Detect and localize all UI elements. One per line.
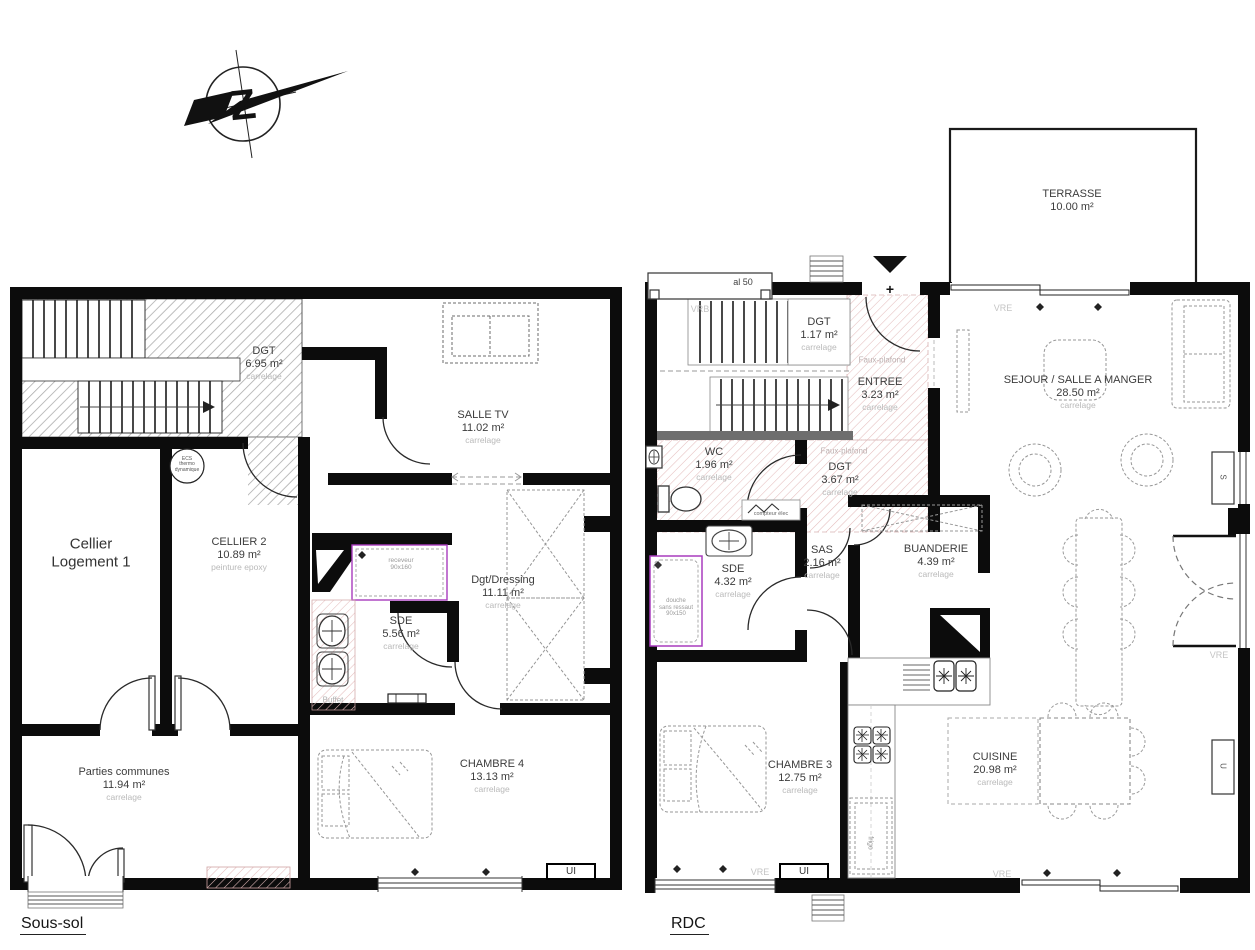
room-area: 20.98 m²: [973, 764, 1018, 777]
room-label-buanderie: BUANDERIE 4.39 m² carrelage: [904, 543, 968, 579]
room-finish: carrelage: [382, 641, 419, 651]
room-finish: carrelage: [245, 371, 282, 381]
room-name: Parties communes: [78, 766, 169, 779]
rdc-chambre3-bed: [660, 726, 766, 812]
vre-tag-3: VRE: [993, 869, 1012, 879]
room-label-cuisine: CUISINE 20.98 m² carrelage: [973, 751, 1018, 787]
room-finish: carrelage: [858, 402, 903, 412]
room-name-line2: Logement 1: [51, 553, 130, 571]
compass-letter: Z: [228, 80, 258, 129]
floorplan-page: Z DGT 6.95 m² carrelage SALLE TV 11.02 m…: [0, 0, 1255, 950]
vre-tag-2: VRE: [1210, 650, 1229, 660]
al50-tag: al 50: [733, 277, 753, 287]
room-label-cellier2: CELLIER 2 10.89 m² peinture epoxy: [211, 536, 267, 572]
room-label-wc: WC 1.96 m² carrelage: [695, 446, 732, 482]
room-finish: carrelage: [695, 472, 732, 482]
radiator: [388, 694, 426, 703]
room-finish: carrelage: [973, 777, 1018, 787]
room-finish: carrelage: [800, 342, 837, 352]
room-label-sejour: SEJOUR / SALLE A MANGER 28.50 m² carrela…: [1004, 374, 1153, 410]
room-name: CHAMBRE 3: [768, 759, 832, 772]
room-area: 1.17 m²: [800, 329, 837, 342]
faux-plafond-note-1: Faux-plafond: [859, 356, 906, 365]
room-label-sde-rdc: SDE 4.32 m² carrelage: [714, 563, 751, 599]
ui-box-soussol: UI: [546, 863, 596, 880]
vrb-tag: VRB: [691, 304, 710, 314]
room-name: SDE: [382, 615, 419, 628]
room-name: CUISINE: [973, 751, 1018, 764]
room-label-chambre3: CHAMBRE 3 12.75 m² carrelage: [768, 759, 832, 795]
frigo-note: frigo: [867, 836, 874, 850]
compteur-note: compteur élec: [754, 511, 789, 517]
room-name: WC: [695, 446, 732, 459]
vre-tag-4: VRE: [751, 867, 770, 877]
ecs-note: ECS thermo dynamique: [175, 457, 199, 473]
room-area: 28.50 m²: [1004, 387, 1153, 400]
room-area: 11.11 m²: [471, 587, 535, 600]
room-area: 6.95 m²: [245, 358, 282, 371]
room-finish: carrelage: [471, 600, 535, 610]
room-label-entree: ENTREE 3.23 m² carrelage: [858, 376, 903, 412]
vre-tag-1: VRE: [994, 303, 1013, 313]
room-area: 3.23 m²: [858, 389, 903, 402]
room-label-dgt-bas: DGT 3.67 m² carrelage: [821, 461, 858, 497]
room-finish: carrelage: [821, 487, 858, 497]
room-name: Dgt/Dressing: [471, 574, 535, 587]
room-area: 11.02 m²: [457, 422, 508, 435]
rdc-plan: [645, 129, 1252, 921]
room-label-terrasse: TERRASSE 10.00 m²: [1042, 188, 1101, 214]
entrance-marker-icon: [873, 256, 907, 273]
room-label-dgt-dressing: Dgt/Dressing 11.11 m² carrelage: [471, 574, 535, 610]
room-finish: carrelage: [904, 569, 968, 579]
room-label-parties-communes: Parties communes 11.94 m² carrelage: [78, 766, 169, 802]
room-name: DGT: [245, 345, 282, 358]
room-area: 1.96 m²: [695, 459, 732, 472]
room-area: 12.75 m²: [768, 772, 832, 785]
room-area: 4.32 m²: [714, 576, 751, 589]
room-finish: carrelage: [714, 589, 751, 599]
room-finish: carrelage: [78, 792, 169, 802]
room-name-line1: Cellier: [51, 535, 130, 553]
room-area: 4.39 m²: [904, 556, 968, 569]
plan-title-soussol: Sous-sol: [20, 915, 86, 935]
room-name: SEJOUR / SALLE A MANGER: [1004, 374, 1153, 387]
room-name: BUANDERIE: [904, 543, 968, 556]
room-finish: carrelage: [1004, 400, 1153, 410]
room-name: DGT: [821, 461, 858, 474]
room-label-dgt-soussol: DGT 6.95 m² carrelage: [245, 345, 282, 381]
room-area: 2.16 m²: [803, 557, 840, 570]
room-area: 10.00 m²: [1042, 201, 1101, 214]
room-name: SAS: [803, 544, 840, 557]
room-label-sas: SAS 2.16 m² carrelage: [803, 544, 840, 580]
plan-title-rdc: RDC: [670, 915, 709, 935]
north-compass-icon: Z: [184, 50, 348, 158]
room-label-dgt-haut: DGT 1.17 m² carrelage: [800, 316, 837, 352]
room-finish: carrelage: [768, 785, 832, 795]
room-area: 3.67 m²: [821, 474, 858, 487]
room-name: SALLE TV: [457, 409, 508, 422]
room-finish: carrelage: [460, 784, 524, 794]
room-area: 11.94 m²: [78, 779, 169, 792]
ui-box-rdc: UI: [779, 863, 829, 880]
douche-note: douche sans ressaut 90x150: [659, 598, 693, 618]
room-finish: peinture epoxy: [211, 562, 267, 572]
receveur-note: receveur 90x160: [388, 557, 413, 571]
room-name: CELLIER 2: [211, 536, 267, 549]
s-marker: S: [1219, 474, 1228, 479]
faux-plafond-note-2: Faux-plafond: [821, 447, 868, 456]
room-finish: carrelage: [457, 435, 508, 445]
room-name: CHAMBRE 4: [460, 758, 524, 771]
room-label-salle-tv: SALLE TV 11.02 m² carrelage: [457, 409, 508, 445]
room-area: 13.13 m²: [460, 771, 524, 784]
future-opening-hatch: [207, 867, 290, 888]
floorplan-drawing: Z: [0, 0, 1255, 950]
rdc-sejour-furniture: [957, 300, 1230, 715]
room-name: DGT: [800, 316, 837, 329]
room-name: ENTREE: [858, 376, 903, 389]
u-marker: U: [1219, 763, 1228, 769]
buffet-note: Buffet: [323, 696, 344, 705]
room-area: 10.89 m²: [211, 549, 267, 562]
room-name: SDE: [714, 563, 751, 576]
room-area: 5.56 m²: [382, 628, 419, 641]
room-name: TERRASSE: [1042, 188, 1101, 201]
room-label-chambre4: CHAMBRE 4 13.13 m² carrelage: [460, 758, 524, 794]
room-finish: carrelage: [803, 570, 840, 580]
entrance-plus: +: [886, 281, 894, 297]
room-label-cellier-logement1: Cellier Logement 1: [51, 535, 130, 570]
soussol-sde-fixtures: [312, 545, 447, 710]
room-label-sde-soussol: SDE 5.56 m² carrelage: [382, 615, 419, 651]
